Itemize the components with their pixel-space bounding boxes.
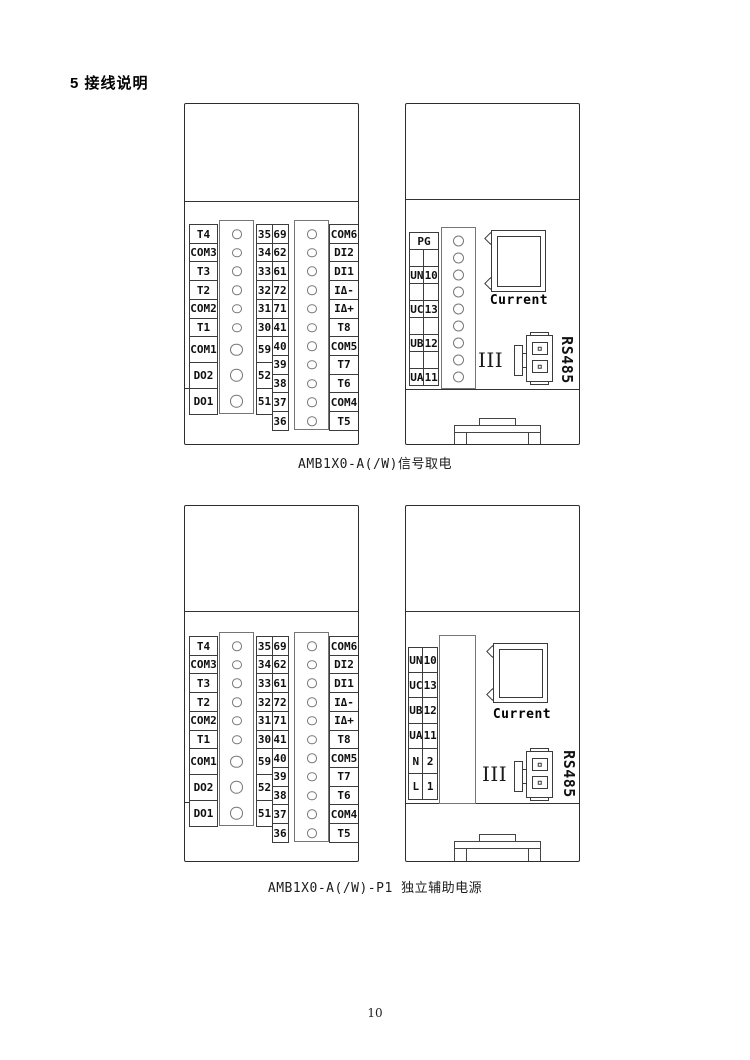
terminal-label: T6 bbox=[329, 374, 359, 394]
terminal-row: 52 bbox=[256, 774, 273, 801]
terminal-hole-icon bbox=[307, 660, 317, 670]
terminal-row: T1 bbox=[189, 730, 218, 750]
terminal-row: 52 bbox=[256, 362, 273, 389]
terminal-number: 69 bbox=[272, 224, 289, 244]
terminal-row: COM1 bbox=[189, 336, 218, 363]
signal-device-terminal-diagram: T4 COM3 T3 T2 COM2 T1 bbox=[184, 103, 359, 445]
terminal-number: 34 bbox=[256, 655, 273, 675]
connector-frame-inner bbox=[497, 236, 541, 287]
terminal-label: DO2 bbox=[189, 774, 218, 801]
terminal-hole-icon bbox=[307, 360, 317, 370]
terminal-label: T4 bbox=[189, 224, 218, 244]
terminal-label: PG bbox=[409, 232, 439, 250]
terminal-label: COM6 bbox=[329, 636, 359, 656]
terminal-hole-icon bbox=[307, 735, 317, 745]
terminal-row: T2 bbox=[189, 692, 218, 712]
terminal-row: IΔ- bbox=[329, 280, 359, 300]
terminal-number: 32 bbox=[256, 692, 273, 712]
terminal-label: DO2 bbox=[189, 362, 218, 389]
terminal-label: T8 bbox=[329, 730, 359, 750]
terminal-label: DO1 bbox=[189, 388, 218, 415]
terminal-number: 31 bbox=[256, 299, 273, 319]
terminal-row: UB 12 bbox=[408, 697, 438, 724]
terminal-row: 33 bbox=[256, 261, 273, 281]
terminal-number: 10 bbox=[423, 266, 439, 284]
terminal-row: 69 bbox=[272, 224, 289, 244]
terminal-number: 35 bbox=[256, 224, 273, 244]
terminal-hole-icon bbox=[232, 641, 242, 651]
terminal-hole-icon bbox=[453, 270, 464, 281]
terminal-label: DI1 bbox=[329, 261, 359, 281]
connector-pin bbox=[537, 364, 542, 369]
terminal-number: 11 bbox=[422, 723, 438, 750]
terminal-row: 59 bbox=[256, 748, 273, 775]
terminal-hole-icon bbox=[232, 304, 242, 314]
terminal-label bbox=[409, 351, 425, 369]
terminal-label: IΔ- bbox=[329, 280, 359, 300]
terminal-label: DI2 bbox=[329, 655, 359, 675]
terminal-row: COM3 bbox=[189, 243, 218, 263]
terminal-label: COM3 bbox=[189, 243, 218, 263]
terminal-row: T7 bbox=[329, 767, 359, 787]
terminal-number: 51 bbox=[256, 388, 273, 415]
terminal-row: T5 bbox=[329, 823, 359, 843]
connector-port bbox=[532, 758, 548, 771]
terminal-hole-icon bbox=[453, 372, 464, 383]
terminal-number: 62 bbox=[272, 655, 289, 675]
terminal-hole-icon bbox=[453, 253, 464, 264]
terminal-label: IΔ- bbox=[329, 692, 359, 712]
terminal-label: T3 bbox=[189, 673, 218, 693]
terminal-hole-icon bbox=[232, 267, 242, 277]
terminal-row: T7 bbox=[329, 355, 359, 375]
terminal-row: 69 bbox=[272, 636, 289, 656]
terminal-row: T3 bbox=[189, 673, 218, 693]
terminal-hole-icon bbox=[307, 304, 317, 314]
terminal-hole-icon bbox=[232, 323, 242, 333]
right-number-column: 69 62 61 72 71 41 40 39 38 37 bbox=[272, 224, 289, 431]
din-clip-icon bbox=[454, 834, 541, 862]
terminal-row: DI1 bbox=[329, 261, 359, 281]
terminal-row: L 1 bbox=[408, 773, 438, 800]
terminal-row: 40 bbox=[272, 336, 289, 356]
terminal-number: 13 bbox=[422, 672, 438, 699]
terminal-number: 59 bbox=[256, 748, 273, 775]
terminal-label: T6 bbox=[329, 786, 359, 806]
right-label-column: COM6 DI2 DI1 IΔ- IΔ+ T8 bbox=[329, 636, 359, 843]
terminal-row: COM1 bbox=[189, 748, 218, 775]
terminal-label: IΔ+ bbox=[329, 299, 359, 319]
terminal-hole-icon bbox=[453, 287, 464, 298]
terminal-number: 62 bbox=[272, 243, 289, 263]
terminal-hole-icon bbox=[453, 304, 464, 315]
terminal-hole-icon bbox=[307, 416, 317, 426]
terminal-row: T6 bbox=[329, 374, 359, 394]
right-label-column: COM6 DI2 DI1 IΔ- IΔ+ T8 bbox=[329, 224, 359, 431]
terminal-number bbox=[423, 283, 439, 301]
terminal-hole-icon bbox=[307, 248, 317, 258]
terminal-number: 12 bbox=[423, 334, 439, 352]
terminal-hole-icon bbox=[307, 716, 317, 726]
terminal-row: 34 bbox=[256, 243, 273, 263]
terminal-row: 51 bbox=[256, 388, 273, 415]
terminal-number: 33 bbox=[256, 261, 273, 281]
right-number-column: 69 62 61 72 71 41 40 39 38 37 bbox=[272, 636, 289, 843]
terminal-row bbox=[409, 249, 439, 267]
terminal-number: 33 bbox=[256, 673, 273, 693]
terminal-row: COM2 bbox=[189, 299, 218, 319]
terminal-row: 36 bbox=[272, 411, 289, 431]
terminal-row: T3 bbox=[189, 261, 218, 281]
terminal-row: COM6 bbox=[329, 224, 359, 244]
terminal-label: T4 bbox=[189, 636, 218, 656]
terminal-row: 38 bbox=[272, 786, 289, 806]
terminal-row: 32 bbox=[256, 692, 273, 712]
terminal-number: 36 bbox=[272, 411, 289, 431]
connector-port bbox=[532, 360, 548, 373]
case-seam-line bbox=[406, 199, 579, 200]
terminal-row: COM4 bbox=[329, 804, 359, 824]
terminal-hole-icon bbox=[307, 828, 317, 838]
voltage-terminal-table: UN 10 UC 13 UB 12 UA 11 N 2 L 1 bbox=[408, 647, 438, 800]
terminal-row: 62 bbox=[272, 243, 289, 263]
terminal-row bbox=[409, 317, 439, 335]
terminal-row: 59 bbox=[256, 336, 273, 363]
group-numeral-label: III bbox=[482, 762, 507, 786]
terminal-hole-icon bbox=[232, 660, 242, 670]
terminal-row: 35 bbox=[256, 224, 273, 244]
terminal-label: T2 bbox=[189, 280, 218, 300]
current-connector-icon bbox=[493, 643, 548, 703]
connector-pin bbox=[537, 780, 542, 785]
terminal-row bbox=[409, 351, 439, 369]
terminal-row: 32 bbox=[256, 280, 273, 300]
rs485-label: RS485 bbox=[561, 746, 577, 802]
terminal-number bbox=[423, 249, 439, 267]
terminal-label: T2 bbox=[189, 692, 218, 712]
manual-page: 5 接线说明 T4 COM3 T3 T2 bbox=[0, 0, 750, 1060]
terminal-number: 2 bbox=[422, 748, 438, 775]
terminal-label: L bbox=[408, 773, 424, 800]
terminal-row: T8 bbox=[329, 318, 359, 338]
terminal-number: 72 bbox=[272, 692, 289, 712]
rs485-connector-icon bbox=[510, 332, 555, 386]
voltage-terminal-table: PG UN 10 UC 13 bbox=[409, 232, 439, 386]
terminal-label: COM3 bbox=[189, 655, 218, 675]
connector-frame-inner bbox=[499, 649, 543, 698]
terminal-hole-icon bbox=[230, 395, 243, 408]
terminal-hole-icon bbox=[307, 229, 317, 239]
terminal-row: T4 bbox=[189, 224, 218, 244]
terminal-row: COM5 bbox=[329, 336, 359, 356]
terminal-number: 38 bbox=[272, 786, 289, 806]
terminal-hole-icon bbox=[307, 641, 317, 651]
terminal-label: COM1 bbox=[189, 748, 218, 775]
terminal-number: 38 bbox=[272, 374, 289, 394]
terminal-label: T5 bbox=[329, 411, 359, 431]
terminal-number: 37 bbox=[272, 392, 289, 412]
page-number: 10 bbox=[0, 1006, 750, 1020]
terminal-label: COM6 bbox=[329, 224, 359, 244]
case-seam-line bbox=[406, 803, 579, 804]
terminal-row: 30 bbox=[256, 318, 273, 338]
section-heading: 5 接线说明 bbox=[70, 72, 149, 93]
terminal-row: T5 bbox=[329, 411, 359, 431]
terminal-number: 13 bbox=[423, 300, 439, 318]
terminal-row: COM4 bbox=[329, 392, 359, 412]
terminal-hole-icon bbox=[307, 791, 317, 801]
terminal-hole-icon bbox=[453, 355, 464, 366]
terminal-row: COM5 bbox=[329, 748, 359, 768]
terminal-row: 37 bbox=[272, 392, 289, 412]
terminal-label: T8 bbox=[329, 318, 359, 338]
terminal-row: UN 10 bbox=[409, 266, 439, 284]
terminal-assembly: T4 COM3 T3 T2 COM2 T1 bbox=[185, 220, 359, 440]
terminal-hole-icon bbox=[230, 807, 243, 820]
case-seam-line bbox=[185, 611, 358, 612]
terminal-label bbox=[409, 249, 425, 267]
terminal-label: COM1 bbox=[189, 336, 218, 363]
aux-device-terminal-diagram: T4 COM3 T3 T2 COM2 T1 bbox=[184, 505, 359, 862]
terminal-number: 41 bbox=[272, 318, 289, 338]
terminal-number: 71 bbox=[272, 299, 289, 319]
terminal-number: 61 bbox=[272, 673, 289, 693]
terminal-number: 11 bbox=[423, 368, 439, 386]
terminal-label: UN bbox=[408, 647, 424, 674]
terminal-assembly: T4 COM3 T3 T2 COM2 T1 bbox=[185, 632, 359, 852]
terminal-number: 36 bbox=[272, 823, 289, 843]
terminal-row: DO1 bbox=[189, 800, 218, 827]
terminal-label: T7 bbox=[329, 767, 359, 787]
terminal-number: 61 bbox=[272, 261, 289, 281]
terminal-number: 30 bbox=[256, 318, 273, 338]
terminal-number: 59 bbox=[256, 336, 273, 363]
terminal-hole-icon bbox=[307, 398, 317, 408]
terminal-label: N bbox=[408, 748, 424, 775]
terminal-number: 51 bbox=[256, 800, 273, 827]
terminal-label: COM2 bbox=[189, 711, 218, 731]
connector-pin bbox=[537, 762, 542, 767]
terminal-row: IΔ+ bbox=[329, 711, 359, 731]
terminal-hole-icon bbox=[232, 285, 242, 295]
terminal-hole-icon bbox=[453, 338, 464, 349]
terminal-row: DI1 bbox=[329, 673, 359, 693]
terminal-hole-icon bbox=[232, 716, 242, 726]
terminal-label: DO1 bbox=[189, 800, 218, 827]
terminal-row: 31 bbox=[256, 711, 273, 731]
terminal-row: PG bbox=[409, 232, 439, 250]
terminal-label: UB bbox=[408, 697, 424, 724]
terminal-label: UN bbox=[409, 266, 425, 284]
terminal-hole-icon bbox=[453, 321, 464, 332]
terminal-label: DI1 bbox=[329, 673, 359, 693]
terminal-row: COM6 bbox=[329, 636, 359, 656]
terminal-number bbox=[423, 351, 439, 369]
terminal-row: 62 bbox=[272, 655, 289, 675]
terminal-hole-icon bbox=[232, 735, 242, 745]
terminal-row: N 2 bbox=[408, 748, 438, 775]
terminal-hole-icon bbox=[232, 697, 242, 707]
terminal-row: 41 bbox=[272, 318, 289, 338]
terminal-number bbox=[423, 317, 439, 335]
terminal-row: 71 bbox=[272, 711, 289, 731]
case-seam-line bbox=[406, 389, 579, 390]
terminal-label: T5 bbox=[329, 823, 359, 843]
terminal-hole-icon bbox=[230, 781, 243, 794]
terminal-number: 1 bbox=[422, 773, 438, 800]
terminal-row: 35 bbox=[256, 636, 273, 656]
connector-pin bbox=[537, 346, 542, 351]
terminal-label: T3 bbox=[189, 261, 218, 281]
terminal-label: UA bbox=[409, 368, 425, 386]
terminal-row: 39 bbox=[272, 767, 289, 787]
terminal-row: 34 bbox=[256, 655, 273, 675]
terminal-label: UB bbox=[409, 334, 425, 352]
terminal-hole-icon bbox=[307, 772, 317, 782]
terminal-hole-icon bbox=[230, 755, 243, 768]
terminal-row: 40 bbox=[272, 748, 289, 768]
terminal-row: 72 bbox=[272, 692, 289, 712]
terminal-number: 52 bbox=[256, 362, 273, 389]
terminal-row: DI2 bbox=[329, 243, 359, 263]
left-label-column: T4 COM3 T3 T2 COM2 T1 bbox=[189, 636, 218, 827]
terminal-hole-icon bbox=[230, 369, 243, 382]
terminal-hole-icon bbox=[307, 697, 317, 707]
terminal-row: T1 bbox=[189, 318, 218, 338]
terminal-row: UC 13 bbox=[408, 672, 438, 699]
terminal-row: 41 bbox=[272, 730, 289, 750]
clip-foot bbox=[528, 848, 541, 862]
terminal-number: 71 bbox=[272, 711, 289, 731]
terminal-hole-icon bbox=[232, 679, 242, 689]
terminal-row: 39 bbox=[272, 355, 289, 375]
terminal-hole-icon bbox=[230, 343, 243, 356]
terminal-number: 41 bbox=[272, 730, 289, 750]
terminal-row: T4 bbox=[189, 636, 218, 656]
current-connector-icon bbox=[491, 230, 546, 292]
terminal-number: 72 bbox=[272, 280, 289, 300]
terminal-label: UA bbox=[408, 723, 424, 750]
terminal-number: 34 bbox=[256, 243, 273, 263]
terminal-label: T7 bbox=[329, 355, 359, 375]
terminal-label bbox=[409, 317, 425, 335]
terminal-row: 51 bbox=[256, 800, 273, 827]
terminal-row: DO1 bbox=[189, 388, 218, 415]
terminal-number: 69 bbox=[272, 636, 289, 656]
terminal-label: UC bbox=[408, 672, 424, 699]
clip-foot bbox=[528, 432, 541, 445]
terminal-row: IΔ- bbox=[329, 692, 359, 712]
terminal-label: COM4 bbox=[329, 392, 359, 412]
aux-device-power-diagram: UN 10 UC 13 UB 12 UA 11 N 2 L 1 bbox=[405, 505, 580, 862]
rs485-connector-icon bbox=[510, 748, 555, 802]
terminal-hole-icon bbox=[307, 379, 317, 389]
terminal-row: UB 12 bbox=[409, 334, 439, 352]
terminal-number: 40 bbox=[272, 748, 289, 768]
terminal-row bbox=[409, 283, 439, 301]
terminal-number: 32 bbox=[256, 280, 273, 300]
diagram-caption-signal: AMB1X0-A(/W)信号取电 bbox=[0, 453, 750, 472]
terminal-row: 31 bbox=[256, 299, 273, 319]
connector-body bbox=[526, 751, 553, 798]
terminal-row: UA 11 bbox=[408, 723, 438, 750]
terminal-label: UC bbox=[409, 300, 425, 318]
connector-port bbox=[532, 776, 548, 789]
terminal-number: 12 bbox=[422, 697, 438, 724]
signal-device-power-diagram: PG UN 10 UC 13 bbox=[405, 103, 580, 445]
diagram-caption-aux: AMB1X0-A(/W)-P1 独立辅助电源 bbox=[0, 877, 750, 896]
terminal-row: 72 bbox=[272, 280, 289, 300]
terminal-row: UA 11 bbox=[409, 368, 439, 386]
terminal-number: 31 bbox=[256, 711, 273, 731]
terminal-row: 61 bbox=[272, 673, 289, 693]
rs485-label: RS485 bbox=[559, 332, 575, 388]
terminal-label: DI2 bbox=[329, 243, 359, 263]
terminal-row: UC 13 bbox=[409, 300, 439, 318]
terminal-number: 30 bbox=[256, 730, 273, 750]
terminal-row: 36 bbox=[272, 823, 289, 843]
left-number-column: 35 34 33 32 31 30 59 52 51 bbox=[256, 636, 273, 827]
terminal-number: 39 bbox=[272, 355, 289, 375]
current-label: Current bbox=[467, 293, 571, 308]
terminal-number: 39 bbox=[272, 767, 289, 787]
connector-port bbox=[532, 342, 548, 355]
terminal-number: 40 bbox=[272, 336, 289, 356]
terminal-hole-icon bbox=[307, 323, 317, 333]
terminal-row: 71 bbox=[272, 299, 289, 319]
terminal-label: COM5 bbox=[329, 336, 359, 356]
terminal-row: IΔ+ bbox=[329, 299, 359, 319]
terminal-label: COM4 bbox=[329, 804, 359, 824]
clip-foot bbox=[454, 848, 467, 862]
terminal-hole-icon bbox=[232, 248, 242, 258]
terminal-hole-icon bbox=[232, 229, 242, 239]
terminal-row: 38 bbox=[272, 374, 289, 394]
terminal-hole-icon bbox=[307, 810, 317, 820]
terminal-row: DO2 bbox=[189, 362, 218, 389]
terminal-row: DI2 bbox=[329, 655, 359, 675]
terminal-row: 30 bbox=[256, 730, 273, 750]
terminal-number: 35 bbox=[256, 636, 273, 656]
terminal-row: 33 bbox=[256, 673, 273, 693]
terminal-hole-icon bbox=[307, 341, 317, 351]
terminal-label bbox=[409, 283, 425, 301]
terminal-number: 52 bbox=[256, 774, 273, 801]
terminal-row: UN 10 bbox=[408, 647, 438, 674]
terminal-row: T6 bbox=[329, 786, 359, 806]
terminal-row: 61 bbox=[272, 261, 289, 281]
group-numeral-label: III bbox=[478, 348, 503, 372]
terminal-row: DO2 bbox=[189, 774, 218, 801]
terminal-row: COM3 bbox=[189, 655, 218, 675]
case-seam-line bbox=[406, 611, 579, 612]
terminal-hole-icon bbox=[307, 285, 317, 295]
terminal-label: COM5 bbox=[329, 748, 359, 768]
clip-foot bbox=[454, 432, 467, 445]
terminal-hole-icon bbox=[307, 679, 317, 689]
terminal-hole-icon bbox=[307, 753, 317, 763]
connector-body bbox=[526, 335, 553, 382]
terminal-row: T2 bbox=[189, 280, 218, 300]
terminal-number: 37 bbox=[272, 804, 289, 824]
left-number-column: 35 34 33 32 31 30 59 52 51 bbox=[256, 224, 273, 415]
terminal-row: 37 bbox=[272, 804, 289, 824]
terminal-label: IΔ+ bbox=[329, 711, 359, 731]
case-seam-line bbox=[185, 201, 358, 202]
din-clip-icon bbox=[454, 418, 541, 445]
terminal-label: T1 bbox=[189, 318, 218, 338]
terminal-hole-icon bbox=[453, 236, 464, 247]
